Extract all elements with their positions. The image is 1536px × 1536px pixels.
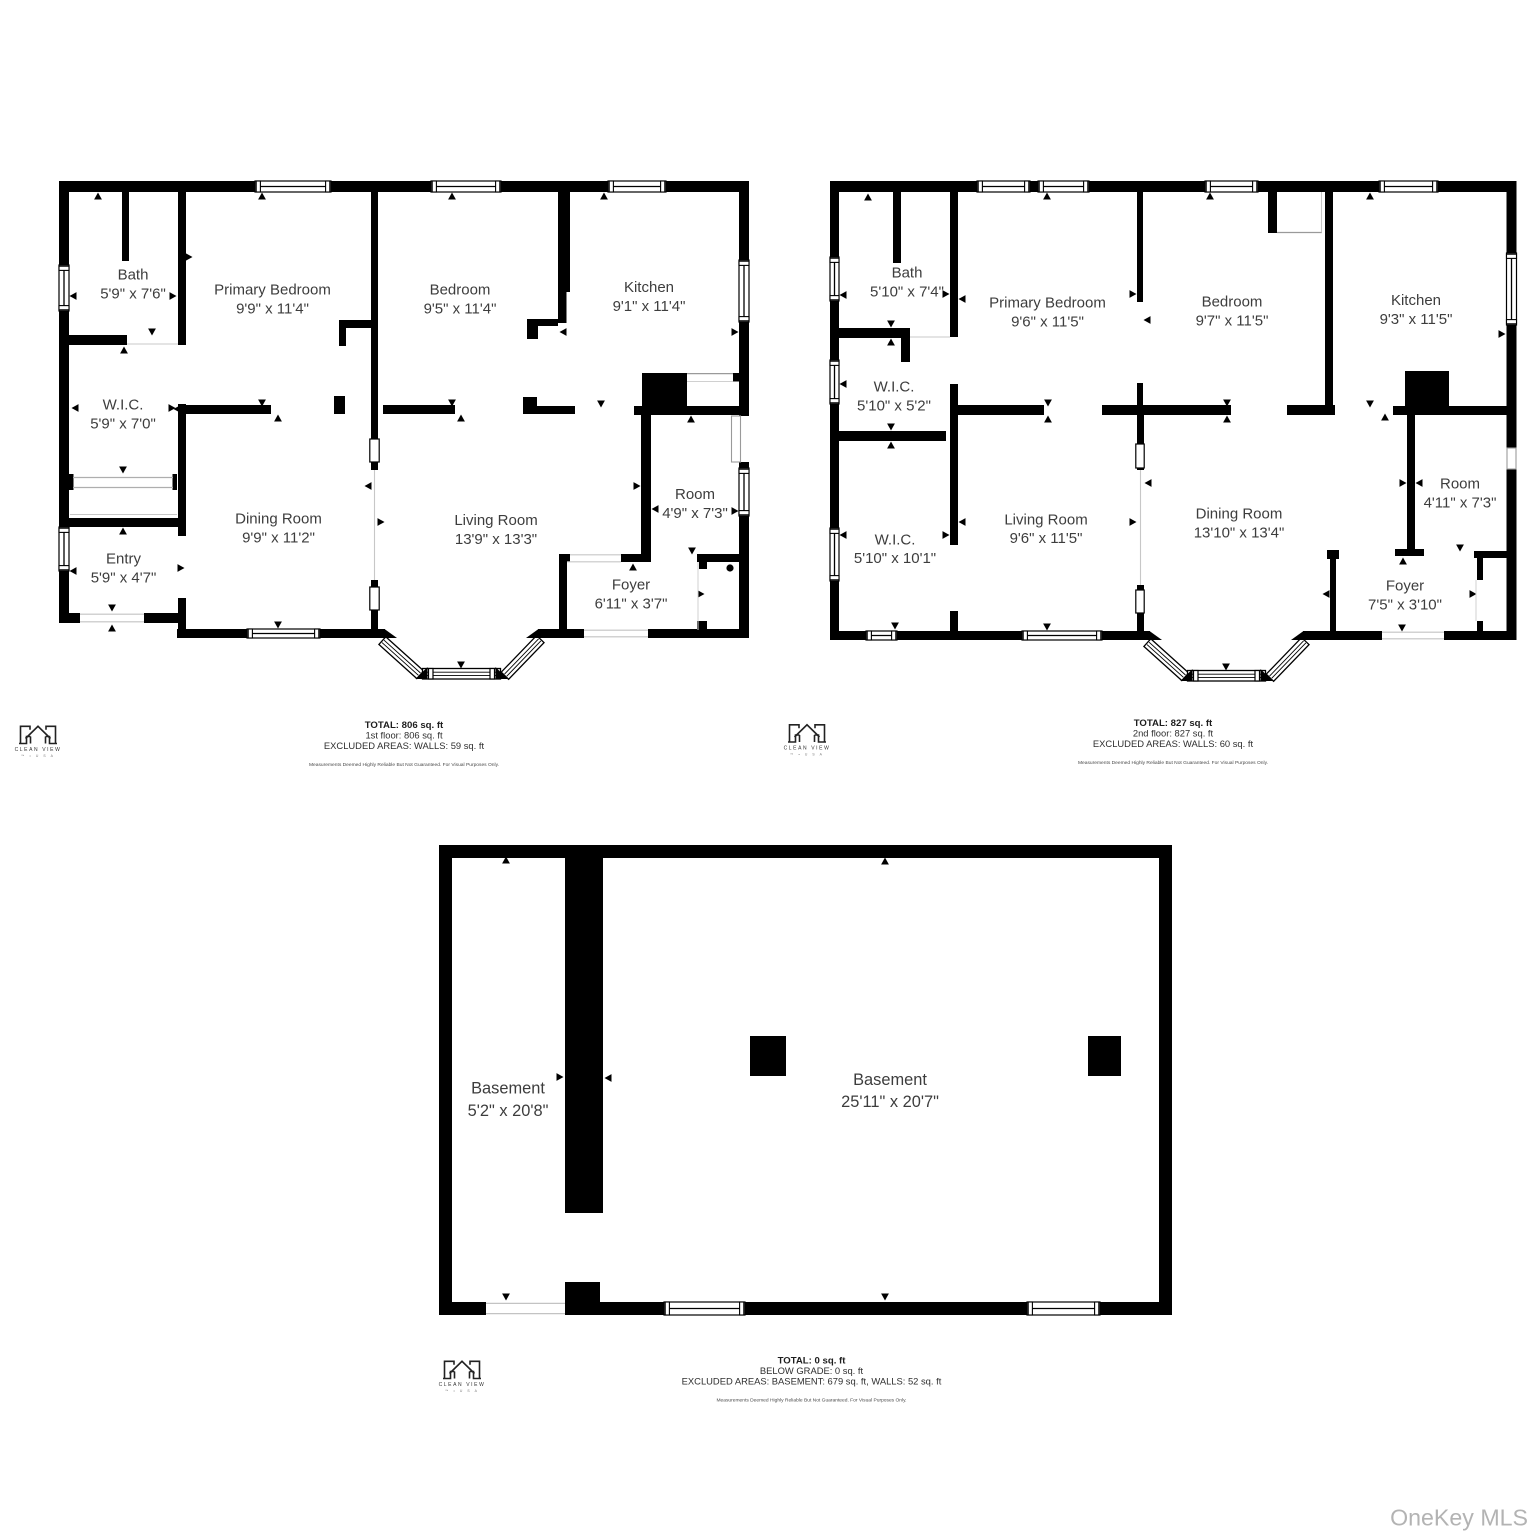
svg-text:9'6" x 11'5": 9'6" x 11'5" — [1010, 530, 1083, 547]
svg-text:13'10" x 13'4": 13'10" x 13'4" — [1194, 524, 1285, 541]
svg-text:CLEAN VIEW: CLEAN VIEW — [784, 746, 831, 752]
svg-text:Bedroom: Bedroom — [430, 282, 491, 299]
svg-text:5'10" x 7'4": 5'10" x 7'4" — [870, 283, 944, 300]
svg-text:Living Room: Living Room — [454, 512, 537, 529]
svg-text:OneKey MLS: OneKey MLS — [1390, 1505, 1528, 1531]
svg-text:Basement: Basement — [471, 1080, 545, 1098]
svg-text:Living Room: Living Room — [1004, 511, 1087, 528]
svg-text:13'9" x 13'3": 13'9" x 13'3" — [455, 531, 537, 548]
svg-text:5'9" x 7'0": 5'9" x 7'0" — [90, 415, 156, 432]
svg-text:W.I.C.: W.I.C. — [875, 531, 916, 548]
svg-text:9'9" x 11'2": 9'9" x 11'2" — [242, 529, 315, 546]
svg-text:5'2" x 20'8": 5'2" x 20'8" — [468, 1102, 549, 1120]
svg-text:Measurements Deemed Highly Rel: Measurements Deemed Highly Reliable But … — [309, 762, 499, 768]
svg-text:Kitchen: Kitchen — [624, 279, 674, 296]
svg-text:9'3" x 11'5": 9'3" x 11'5" — [1380, 311, 1453, 328]
svg-text:9'5" x 11'4": 9'5" x 11'4" — [424, 300, 497, 317]
svg-text:Bedroom: Bedroom — [1202, 294, 1263, 311]
svg-text:Bath: Bath — [892, 265, 923, 282]
svg-text:Foyer: Foyer — [612, 577, 650, 594]
svg-text:Basement: Basement — [853, 1071, 927, 1089]
svg-text:5'9" x 7'6": 5'9" x 7'6" — [100, 285, 166, 302]
svg-text:Kitchen: Kitchen — [1391, 292, 1441, 309]
svg-text:Measurements Deemed Highly Rel: Measurements Deemed Highly Reliable But … — [716, 1398, 906, 1404]
svg-text:9'7" x 11'5": 9'7" x 11'5" — [1196, 312, 1269, 329]
svg-text:W.I.C.: W.I.C. — [874, 379, 915, 396]
svg-text:5'10" x 10'1": 5'10" x 10'1" — [854, 550, 936, 567]
svg-text:9'6" x 11'5": 9'6" x 11'5" — [1011, 313, 1084, 330]
svg-text:Entry: Entry — [106, 551, 142, 568]
svg-text:9'9" x 11'4": 9'9" x 11'4" — [236, 300, 309, 317]
svg-text:25'11" x 20'7": 25'11" x 20'7" — [841, 1093, 939, 1111]
svg-text:EXCLUDED AREAS: WALLS: 59 sq.: EXCLUDED AREAS: WALLS: 59 sq. ft — [324, 740, 485, 751]
svg-text:9'1" x 11'4": 9'1" x 11'4" — [613, 298, 686, 315]
svg-text:Room: Room — [675, 486, 715, 503]
svg-text:Dining Room: Dining Room — [235, 511, 322, 528]
svg-text:Measurements Deemed Highly Rel: Measurements Deemed Highly Reliable But … — [1078, 760, 1268, 766]
svg-text:EXCLUDED AREAS: BASEMENT: 679: EXCLUDED AREAS: BASEMENT: 679 sq. ft, WA… — [682, 1375, 942, 1386]
svg-text:™ • U S A: ™ • U S A — [445, 1389, 479, 1393]
svg-text:CLEAN VIEW: CLEAN VIEW — [439, 1382, 486, 1388]
svg-text:5'9" x 4'7": 5'9" x 4'7" — [91, 569, 157, 586]
svg-text:™ • U S A: ™ • U S A — [790, 753, 824, 757]
svg-text:CLEAN VIEW: CLEAN VIEW — [15, 747, 62, 753]
svg-text:4'9" x 7'3": 4'9" x 7'3" — [662, 505, 728, 522]
svg-text:W.I.C.: W.I.C. — [103, 397, 144, 414]
svg-text:™ • U S A: ™ • U S A — [21, 754, 55, 758]
svg-text:7'5" x 3'10": 7'5" x 3'10" — [1368, 596, 1442, 613]
svg-text:5'10" x 5'2": 5'10" x 5'2" — [857, 397, 931, 414]
svg-text:Primary Bedroom: Primary Bedroom — [214, 282, 331, 299]
svg-text:Dining Room: Dining Room — [1196, 506, 1283, 523]
svg-text:6'11" x 3'7": 6'11" x 3'7" — [595, 595, 668, 612]
svg-text:Foyer: Foyer — [1386, 578, 1424, 595]
svg-text:EXCLUDED AREAS: WALLS: 60 sq.: EXCLUDED AREAS: WALLS: 60 sq. ft — [1093, 738, 1254, 749]
svg-text:Primary Bedroom: Primary Bedroom — [989, 295, 1106, 312]
svg-text:4'11" x 7'3": 4'11" x 7'3" — [1424, 494, 1497, 511]
svg-text:Bath: Bath — [118, 267, 149, 284]
svg-text:Room: Room — [1440, 476, 1480, 493]
